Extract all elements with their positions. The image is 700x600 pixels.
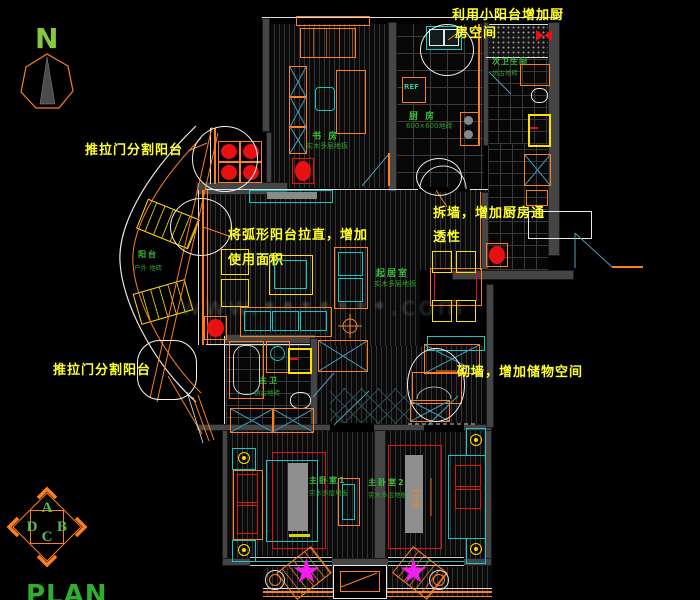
plan-title: PLAN bbox=[26, 580, 108, 600]
kitchen-finish: 600×600地砖 bbox=[406, 121, 453, 131]
bed1-finish: 实木多层地板 bbox=[309, 487, 348, 497]
annotation-build-wall: 砌墙，增加储物空间 bbox=[457, 361, 583, 380]
utility-valve-symbol bbox=[544, 30, 552, 41]
key-letter-bottom: C bbox=[41, 529, 53, 546]
bed2-label: 主卧室2 bbox=[368, 477, 406, 488]
study-door-swing bbox=[362, 155, 388, 186]
annotation-use-small-balcony-1: 利用小阳台增加厨 bbox=[452, 4, 564, 23]
annotation-split-balcony-bottom: 推拉门分割阳台 bbox=[53, 359, 151, 378]
bath1-label: 主卫 bbox=[259, 375, 279, 386]
leader-balloon bbox=[416, 158, 462, 196]
balcony-label: 阳台 bbox=[138, 249, 158, 260]
entry-door-swing bbox=[575, 233, 612, 267]
bed2-finish: 实木多层地板 bbox=[368, 489, 407, 499]
bed2-dimension-text: 2100 bbox=[411, 488, 420, 508]
living-label: 起居室 bbox=[376, 266, 409, 279]
annotation-use-small-balcony-2: 房空间 bbox=[455, 22, 497, 41]
watermark: www.•••••••.com bbox=[180, 292, 466, 322]
annotation-demolish-wall-1: 拆墙，增加厨房通 bbox=[433, 202, 545, 221]
living-finish: 实木多层地板 bbox=[374, 279, 416, 289]
floorplan-canvas: www.•••••••.com N 推拉门分割阳台 利用小阳台增加厨 房空间 将… bbox=[0, 0, 700, 600]
bath2-label: 次卫生间 bbox=[492, 56, 528, 67]
key-letter-top: A bbox=[41, 500, 53, 517]
bath2-finish: 仿古地砖 bbox=[492, 67, 518, 77]
leader-balloon bbox=[407, 348, 465, 422]
annotation-demolish-wall-2: 透性 bbox=[433, 226, 461, 245]
compass-north-label: N bbox=[35, 22, 58, 55]
fridge-label: REF bbox=[404, 83, 419, 91]
bath1-finish: 仿古地砖 bbox=[254, 387, 280, 397]
ac-diagonal bbox=[341, 573, 377, 587]
utility-valve-symbol bbox=[536, 30, 544, 41]
key-letter-right: B bbox=[56, 519, 68, 536]
balcony-finish: 户外 地砖 bbox=[134, 262, 162, 272]
compass-needle bbox=[40, 57, 55, 104]
study-finish: 实木多层地板 bbox=[306, 141, 348, 151]
annotation-straighten-balcony-2: 使用面积 bbox=[228, 249, 284, 268]
bed1-door-swing bbox=[334, 391, 369, 425]
key-letter-left: D bbox=[26, 519, 38, 536]
bed1-label: 主卧室1 bbox=[309, 475, 347, 486]
bath1-door-swing bbox=[313, 373, 334, 397]
annotation-split-balcony-top: 推拉门分割阳台 bbox=[85, 139, 183, 158]
leader-balloon bbox=[192, 126, 258, 192]
leader-balloon bbox=[170, 198, 232, 256]
annotation-straighten-balcony-1: 将弧形阳台拉直，增加 bbox=[228, 224, 368, 243]
